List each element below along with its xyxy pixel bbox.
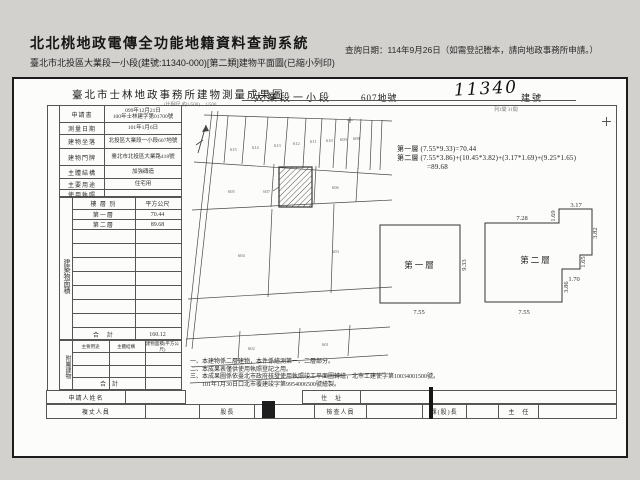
north-arrow-icon xyxy=(196,125,209,153)
col-header-use: 主要用途 xyxy=(73,344,108,350)
area-calculations: 第一層 (7.55*9.33)=70.44 第二層 (7.55*3.86)+(1… xyxy=(397,145,625,172)
table-row: 主體結構 加強磚造 xyxy=(60,165,181,178)
survey-cross-mark xyxy=(602,117,611,126)
dim-label: 3.82 xyxy=(592,227,599,238)
signature-cell xyxy=(538,405,616,418)
dim-label: 3.86 xyxy=(563,281,570,293)
applicant-label: 申請人姓名 xyxy=(47,391,125,403)
row-value: 臺北市北投區大業路418號 xyxy=(111,154,174,161)
scan-artifact-bar xyxy=(429,387,433,419)
address-value-cell xyxy=(360,391,616,403)
table-row: 申請書 099年12月21日 100年士林建字第01700號 xyxy=(60,106,181,122)
lot-number: 607地號 xyxy=(361,91,398,104)
parcel-number: 608 xyxy=(353,136,361,141)
staff-director-label: 主 任 xyxy=(498,405,538,418)
header-underline xyxy=(242,100,576,101)
row-label: 主體結構 xyxy=(60,166,105,178)
staff-surveyor-label: 複丈人員 xyxy=(47,405,145,418)
row-value: 住宅用 xyxy=(135,181,152,188)
row-value-line2: 100年士林建字第01700號 xyxy=(113,114,174,121)
annex-content: 主要用途 主體結構 建物面積(平方公尺) 合 計 xyxy=(73,341,181,389)
total-row: 合 計 160.12 xyxy=(73,327,181,341)
dim-label: 7.55 xyxy=(518,309,529,316)
applicant-row: 申請人姓名 xyxy=(46,390,186,404)
calc-floor2-result: =89.68 xyxy=(397,163,625,172)
row-value: 101年1月6日 xyxy=(128,125,158,132)
floor-table-side-label: 建築物面積 xyxy=(60,198,73,339)
parcel-number: 602 xyxy=(248,346,255,351)
empty-row xyxy=(73,271,181,285)
column-divider xyxy=(109,341,110,389)
signature-cell xyxy=(366,405,422,418)
table-row: 第二層 89.68 xyxy=(73,219,181,229)
signature-cell xyxy=(145,405,200,418)
floor-area: 89.68 xyxy=(134,222,181,228)
subject-parcel-number: 607 xyxy=(263,189,271,194)
empty-row xyxy=(73,285,181,299)
notes: 一、本建物係二層建物，本件係繪測第一、二層部分。 二、本成果表僅供使用執照登記之… xyxy=(190,359,495,389)
dim-label: 1.65 xyxy=(580,256,587,267)
note-line: 101年1月30日口北市覆建竣字第9954006500號繪製。 xyxy=(190,382,495,390)
subject-parcel-hatched xyxy=(279,167,312,207)
total-row: 合 計 xyxy=(73,377,181,389)
table-row: 建物門牌 臺北市北投區大業路418號 xyxy=(60,148,181,165)
row-label: 測量日期 xyxy=(60,123,105,134)
floor-table-content: 樓 層 別 平方公尺 第一層 70.44 第二層 89.68 xyxy=(73,198,181,339)
col-header-area: 平方公尺 xyxy=(134,199,181,208)
parcel-number: 611 xyxy=(310,139,317,144)
parcel-number: 612 xyxy=(293,141,300,146)
row-value: 加強磚造 xyxy=(132,169,154,176)
parcel-number: 603 xyxy=(332,249,340,254)
parcel-number: 613 xyxy=(274,143,282,148)
annex-header: 主要用途 主體結構 建物面積(平方公尺) xyxy=(73,341,181,352)
query-date-text: 查詢日期：114年9月26日（如需登記謄本，請向地政事務所申請。） xyxy=(345,44,598,56)
empty-row xyxy=(73,243,181,257)
dim-label: 1.69 xyxy=(550,210,557,221)
empty-row xyxy=(73,299,181,313)
applicant-value-cell xyxy=(125,391,185,403)
dim-label: 9.33 xyxy=(461,259,468,270)
floor-table-header: 樓 層 別 平方公尺 xyxy=(73,198,181,209)
floor2-label: 第二層 xyxy=(520,255,552,265)
column-divider xyxy=(145,341,146,389)
parcel-number: 610 xyxy=(326,138,334,143)
section-name: 大業段一小段 xyxy=(254,89,332,104)
total-value: 160.12 xyxy=(134,332,181,338)
floor-area: 70.44 xyxy=(134,212,181,218)
empty-row xyxy=(73,352,181,365)
building-number-label: 建號 xyxy=(521,91,543,104)
floor-name: 第一層 xyxy=(73,210,134,219)
scan-artifact-blot xyxy=(262,401,275,418)
empty-row xyxy=(73,229,181,243)
floor-area-table: 建築物面積 樓 層 別 平方公尺 第一層 70.44 第二層 89.68 xyxy=(59,197,182,340)
empty-row xyxy=(73,313,181,327)
dim-label: 1.70 xyxy=(568,276,579,283)
parcel-number: 601 xyxy=(322,342,329,347)
col-header-floor: 樓 層 別 xyxy=(73,199,134,208)
table-row: 測量日期 101年1月6日 xyxy=(60,122,181,134)
total-label: 合 計 xyxy=(73,330,134,339)
document-subtitle: 臺北市北投區大業段一小段(建號:11340-000)[第二類]建物平面圖(已縮小… xyxy=(30,56,335,69)
document-scan: 臺北市士林地政事務所建物測量成果圖 大業段一小段 607地號 11340 建號 … xyxy=(12,77,628,458)
building-number-handwritten: 11340 xyxy=(454,77,519,100)
parcel-number: 614 xyxy=(252,145,260,150)
dim-label: 7.28 xyxy=(516,215,527,222)
row-value: 099年12月21日 100年士林建字第01700號 xyxy=(105,106,181,122)
calc-floor2: 第二層 (7.55*3.86)+(10.45*3.82)+(3.17*1.69)… xyxy=(397,154,625,163)
col-header-area: 建物面積(平方公尺) xyxy=(144,341,181,353)
row-label: 主要用途 xyxy=(60,179,105,189)
parcel-number: 609 xyxy=(340,137,348,142)
signature-cell xyxy=(466,405,499,418)
row-label: 申請書 xyxy=(60,106,105,122)
parcel-lines xyxy=(186,111,392,383)
dim-label: 7.55 xyxy=(413,309,424,316)
staff-row: 複丈人員 股長 檢查人員 課(股)長 主 任 xyxy=(46,404,617,419)
floor-name: 第二層 xyxy=(73,220,134,229)
parcel-number: 606 xyxy=(332,185,340,190)
empty-row xyxy=(73,365,181,377)
floor-plan-drawings: 第一層 7.55 9.33 第二層 7.28 1.69 3.17 3.82 1.… xyxy=(364,197,626,323)
table-row: 主要用途 住宅用 xyxy=(60,178,181,189)
parcel-number: 604 xyxy=(238,253,246,258)
note-line: 二、本成果表僅供使用執照登記之用。 xyxy=(190,367,495,375)
staff-chief-label: 股長 xyxy=(199,405,254,418)
empty-row xyxy=(73,257,181,271)
table-row: 建物坐落 北投區大業段一小段607地號 xyxy=(60,134,181,148)
note-line: 三、本成果圖係依臺北市政府核發使用執照竣工平面圖轉繪，北市工建使字第100340… xyxy=(190,374,495,382)
annex-table: 附屬建物 主要用途 主體結構 建物面積(平方公尺) 合 計 xyxy=(59,340,182,390)
column-divider xyxy=(135,198,136,339)
app-title: 北北桃地政電傳全功能地籍資料查詢系統 xyxy=(30,33,309,53)
annex-side-label: 附屬建物 xyxy=(60,341,73,389)
staff-inspector-label: 檢查人員 xyxy=(314,405,366,418)
note-line: 一、本建物係二層建物，本件係繪測第一、二層部分。 xyxy=(190,359,495,367)
dim-label: 3.17 xyxy=(570,202,582,209)
calc-floor1: 第一層 (7.55*9.33)=70.44 xyxy=(397,145,625,154)
parcel-number: 615 xyxy=(230,147,238,152)
info-table: 申請書 099年12月21日 100年士林建字第01700號 測量日期 101年… xyxy=(59,105,182,197)
row-label: 建物坐落 xyxy=(60,135,105,148)
col-header-structure: 主體結構 xyxy=(108,344,143,350)
table-row: 第一層 70.44 xyxy=(73,209,181,219)
row-value: 北投區大業段一小段607地號 xyxy=(109,138,178,145)
row-label: 建物門牌 xyxy=(60,149,105,165)
floor1-label: 第一層 xyxy=(404,260,436,270)
parcel-number: 605 xyxy=(228,189,236,194)
